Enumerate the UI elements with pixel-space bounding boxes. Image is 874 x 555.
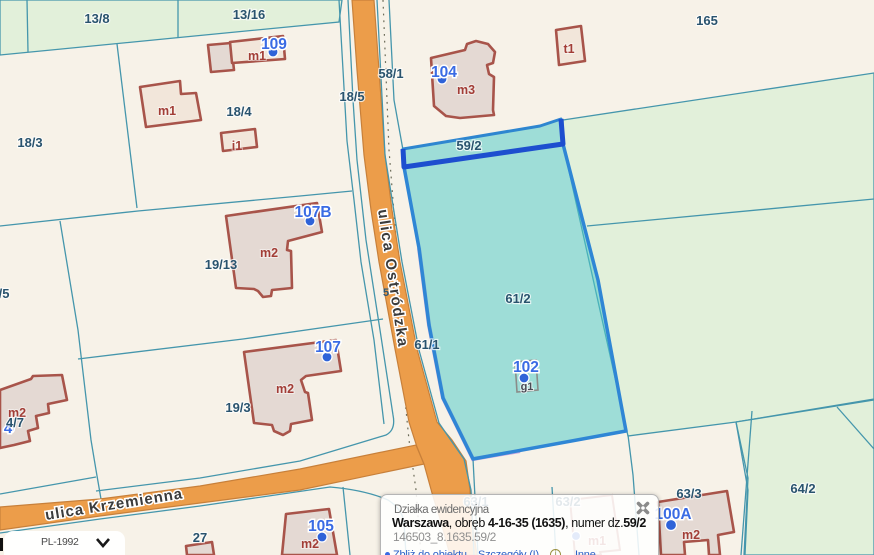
svg-text:4/7: 4/7 bbox=[6, 415, 24, 430]
svg-text:58/1: 58/1 bbox=[378, 66, 403, 81]
svg-text:19/3: 19/3 bbox=[225, 400, 250, 415]
svg-text:m2: m2 bbox=[276, 382, 294, 396]
svg-text:100A: 100A bbox=[654, 506, 691, 523]
svg-text:m1: m1 bbox=[158, 104, 176, 118]
svg-text:59/2: 59/2 bbox=[456, 138, 481, 153]
svg-text:t1: t1 bbox=[563, 42, 574, 56]
svg-text:m2: m2 bbox=[260, 246, 278, 260]
svg-text:102: 102 bbox=[513, 359, 539, 376]
svg-text:61/1: 61/1 bbox=[414, 337, 439, 352]
svg-text:m2: m2 bbox=[301, 537, 319, 551]
svg-text:107: 107 bbox=[315, 339, 341, 356]
svg-text:105: 105 bbox=[308, 518, 334, 535]
svg-text:13/16: 13/16 bbox=[233, 7, 266, 22]
svg-text:19/13: 19/13 bbox=[205, 257, 238, 272]
svg-text:i1: i1 bbox=[232, 139, 242, 153]
svg-text:18/4: 18/4 bbox=[226, 104, 252, 119]
svg-text:107B: 107B bbox=[294, 204, 331, 221]
svg-text:m2: m2 bbox=[682, 528, 700, 542]
svg-text:27: 27 bbox=[193, 530, 207, 545]
svg-text:18/5: 18/5 bbox=[339, 89, 364, 104]
svg-text:104: 104 bbox=[431, 64, 457, 81]
svg-text:165: 165 bbox=[696, 13, 718, 28]
svg-text:61/2: 61/2 bbox=[505, 291, 530, 306]
svg-text:63/3: 63/3 bbox=[676, 486, 701, 501]
svg-text:13/8: 13/8 bbox=[84, 11, 109, 26]
svg-text:64/2: 64/2 bbox=[790, 481, 815, 496]
svg-text:m3: m3 bbox=[457, 83, 475, 97]
svg-text:/5: /5 bbox=[0, 286, 9, 301]
svg-text:109: 109 bbox=[261, 36, 287, 53]
svg-text:18/3: 18/3 bbox=[17, 135, 42, 150]
